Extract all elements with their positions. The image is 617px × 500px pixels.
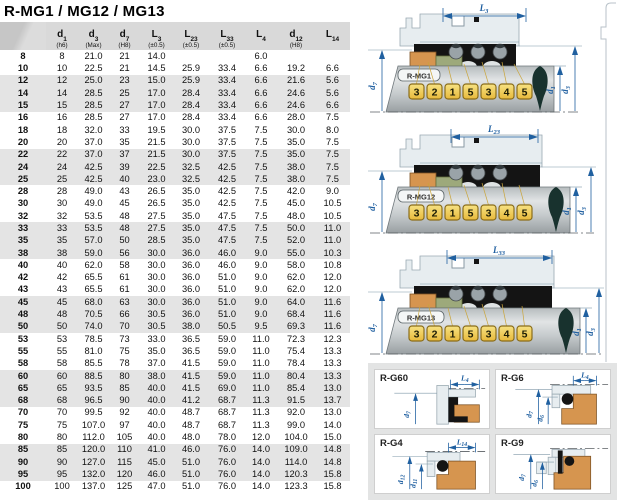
table-cell: 7.5	[245, 185, 277, 197]
table-cell: 68.0	[78, 296, 109, 308]
table-cell: 23.0	[140, 173, 173, 185]
table-cell: 70	[0, 407, 46, 419]
table-cell: 22	[46, 149, 78, 161]
table-row: 100 100 137.0 125 47.0 51.0 76.0 14.0 12…	[0, 481, 350, 493]
table-cell: 70.5	[78, 308, 109, 320]
table-cell: 25.0	[78, 75, 109, 87]
seat-ring	[410, 294, 436, 308]
set-screw	[474, 259, 479, 264]
table-cell: 127.0	[78, 456, 109, 468]
table-cell: 53	[46, 333, 78, 345]
table-cell: 35.0	[277, 136, 315, 148]
table-cell: 42.5	[209, 198, 245, 210]
table-cell: 11.0	[245, 370, 277, 382]
table-cell: 18	[46, 124, 78, 136]
table-cell: 40.0	[140, 431, 173, 443]
table-cell: 36.0	[173, 259, 209, 271]
table-cell: 80.4	[277, 370, 315, 382]
table-cell: 9.0	[245, 296, 277, 308]
svg-text:3: 3	[486, 208, 492, 220]
table-cell: 45.0	[140, 456, 173, 468]
svg-text:R-MG1: R-MG1	[407, 72, 431, 81]
table-cell: 10.8	[315, 259, 350, 271]
table-cell: 51.0	[173, 456, 209, 468]
svg-text:2: 2	[432, 208, 438, 220]
table-cell: 120.3	[277, 468, 315, 480]
table-cell: 30.0	[140, 247, 173, 259]
table-cell: 12	[46, 75, 78, 87]
table-cell: 51.0	[209, 272, 245, 284]
table-cell: 28.5	[140, 235, 173, 247]
table-cell: 37.5	[209, 136, 245, 148]
column-header-L23: L23(±0.5)	[173, 22, 209, 50]
table-cell: 14.8	[315, 444, 350, 456]
table-cell: 58.0	[277, 259, 315, 271]
table-cell: 32	[46, 210, 78, 222]
table-cell: 9.0	[245, 247, 277, 259]
table-cell: 95	[0, 468, 46, 480]
table-cell: 16	[0, 112, 46, 124]
table-cell: 24.6	[277, 87, 315, 99]
table-row: 18 18 32.0 33 19.5 30.0 37.5 7.5 30.0 8.…	[0, 124, 350, 136]
table-cell: 40.0	[140, 382, 173, 394]
table-cell: 100	[46, 481, 78, 493]
table-cell: 14.0	[245, 468, 277, 480]
table-cell: 13.3	[315, 370, 350, 382]
table-cell: 46.0	[140, 468, 173, 480]
table-cell	[277, 50, 315, 62]
table-cell: 23	[109, 75, 140, 87]
table-cell: 11.6	[315, 296, 350, 308]
table-cell: 9.0	[245, 284, 277, 296]
table-row: 16 16 28.5 27 17.0 28.4 33.4 6.6 28.0 7.…	[0, 112, 350, 124]
model-tag: R-MG12	[398, 190, 444, 202]
svg-text:4: 4	[504, 87, 510, 99]
table-cell: 70	[46, 407, 78, 419]
table-cell: 33.4	[209, 87, 245, 99]
svg-text:d3: d3	[560, 85, 572, 94]
seal-diagram-mg1: R-MG1 3 2 1 5 3 4 5 d7 d1	[362, 0, 614, 121]
table-cell: 66	[109, 308, 140, 320]
table-cell: 37.5	[209, 124, 245, 136]
table-cell: 78.4	[277, 358, 315, 370]
table-row: 90 90 127.0 115 45.0 51.0 76.0 14.0 114.…	[0, 456, 350, 468]
svg-text:5: 5	[522, 208, 528, 220]
svg-text:1: 1	[450, 329, 456, 341]
dimension-table-panel: R-MG1 / MG12 / MG13 d1(h6) d3(Max) d7(H8…	[0, 0, 362, 493]
table-cell: 65.5	[78, 272, 109, 284]
table-cell: 6.6	[245, 62, 277, 74]
table-cell: 32	[0, 210, 46, 222]
table-cell: 114.0	[277, 456, 315, 468]
table-cell: 28.0	[277, 112, 315, 124]
table-cell: 58	[46, 358, 78, 370]
table-cell: 42.5	[209, 161, 245, 173]
table-cell: 68.7	[209, 395, 245, 407]
table-cell: 28.5	[78, 112, 109, 124]
table-cell: 45	[109, 198, 140, 210]
table-cell: 25.9	[173, 62, 209, 74]
table-cell: 38	[0, 247, 46, 259]
seat-ring	[410, 173, 436, 187]
table-row: 15 15 28.5 27 17.0 28.4 33.4 6.6 24.6 6.…	[0, 99, 350, 111]
table-cell: 7.5	[315, 149, 350, 161]
table-cell: 27.5	[140, 210, 173, 222]
table-cell: 19.2	[277, 62, 315, 74]
table-cell: 10	[0, 62, 46, 74]
table-row: 10 10 22.5 21 14.5 25.9 33.4 6.6 19.2 6.…	[0, 62, 350, 74]
table-cell: 48.7	[173, 407, 209, 419]
table-cell: 11.0	[315, 235, 350, 247]
table-cell: 27.5	[140, 222, 173, 234]
svg-text:d6: d6	[535, 415, 545, 422]
table-cell: 11.0	[245, 382, 277, 394]
table-cell: 9.0	[315, 185, 350, 197]
table-cell: 50.0	[277, 222, 315, 234]
table-row: 35 35 57.0 50 28.5 35.0 47.5 7.5 52.0 11…	[0, 235, 350, 247]
seat-variant-cards: R-G60 L4 d7 R-G6	[368, 363, 617, 500]
table-cell	[209, 50, 245, 62]
table-cell: 41.5	[173, 382, 209, 394]
table-cell: 11.3	[245, 419, 277, 431]
table-cell: 32.0	[78, 124, 109, 136]
table-cell: 64.0	[277, 296, 315, 308]
table-cell: 25	[46, 173, 78, 185]
table-cell: 12.3	[315, 333, 350, 345]
set-screw	[474, 138, 479, 143]
table-cell: 59.0	[209, 358, 245, 370]
table-cell: 57.0	[78, 235, 109, 247]
table-cell: 37	[109, 149, 140, 161]
table-cell: 14.5	[140, 62, 173, 74]
table-row: 42 42 65.5 61 30.0 36.0 51.0 9.0 62.0 12…	[0, 272, 350, 284]
table-cell: 50	[0, 321, 46, 333]
table-cell: 33.4	[209, 62, 245, 74]
table-cell: 75	[0, 419, 46, 431]
svg-text:4: 4	[504, 208, 510, 220]
table-cell: 41.0	[140, 444, 173, 456]
column-header-d12: d12(H8)	[277, 22, 315, 50]
table-cell: 10.5	[315, 210, 350, 222]
bellows-black	[558, 450, 563, 473]
table-cell: 68	[46, 395, 78, 407]
table-cell: 104.0	[277, 431, 315, 443]
table-cell: 50	[46, 321, 78, 333]
oring	[565, 456, 575, 466]
oring	[437, 460, 449, 472]
table-cell: 42.5	[78, 161, 109, 173]
table-cell: 47.5	[209, 210, 245, 222]
model-tag: R-MG13	[398, 311, 444, 323]
table-cell: 42	[46, 272, 78, 284]
table-row: 8 8 21.0 21 14.0 6.0	[0, 50, 350, 62]
svg-text:2: 2	[432, 329, 438, 341]
table-cell: 15.0	[315, 431, 350, 443]
svg-text:2: 2	[432, 87, 438, 99]
svg-text:5: 5	[522, 87, 528, 99]
table-cell: 12	[0, 75, 46, 87]
table-cell: 42	[0, 272, 46, 284]
table-row: 80 80 112.0 105 40.0 48.0 78.0 12.0 104.…	[0, 431, 350, 443]
table-cell: 85	[109, 382, 140, 394]
table-cell: 28	[46, 185, 78, 197]
svg-text:L33: L33	[492, 245, 506, 257]
table-cell: 6.6	[245, 112, 277, 124]
table-cell: 21.5	[140, 136, 173, 148]
table-cell: 40	[109, 173, 140, 185]
table-cell: 35	[109, 136, 140, 148]
column-header-L14: L14	[315, 22, 350, 50]
table-cell: 14.8	[315, 456, 350, 468]
table-cell: 35.0	[173, 198, 209, 210]
svg-text:d7: d7	[367, 323, 379, 332]
table-cell: 33.4	[209, 112, 245, 124]
column-header-d1: d1(h6)	[46, 22, 78, 50]
table-cell: 46.0	[173, 444, 209, 456]
table-cell: 28	[0, 185, 46, 197]
table-cell: 75	[109, 345, 140, 357]
svg-text:1: 1	[450, 87, 456, 99]
table-cell: 40	[46, 259, 78, 271]
table-cell: 35.0	[140, 345, 173, 357]
table-cell: 99.0	[277, 419, 315, 431]
table-cell: 37.5	[209, 149, 245, 161]
table-cell: 42.0	[277, 185, 315, 197]
table-cell: 63	[109, 296, 140, 308]
table-cell: 17.0	[140, 112, 173, 124]
table-cell: 35.0	[173, 185, 209, 197]
seal-housing	[400, 135, 542, 167]
table-cell: 41.5	[173, 358, 209, 370]
table-cell: 24.6	[277, 99, 315, 111]
gland	[427, 452, 460, 461]
table-cell: 12.0	[245, 431, 277, 443]
table-cell: 30.0	[140, 296, 173, 308]
table-cell: 49.0	[78, 198, 109, 210]
svg-text:d3: d3	[576, 206, 588, 215]
table-cell: 10.5	[315, 198, 350, 210]
column-header-L4: L4	[245, 22, 277, 50]
table-cell: 13.0	[315, 407, 350, 419]
table-cell: 53	[0, 333, 46, 345]
table-cell: 60	[46, 370, 78, 382]
table-cell: 30.0	[140, 259, 173, 271]
table-cell: 35.0	[277, 149, 315, 161]
table-cell: 17.0	[140, 87, 173, 99]
table-cell: 45	[0, 296, 46, 308]
table-cell: 32.5	[173, 173, 209, 185]
card-r-g6: R-G6 L4 d7 d6	[495, 369, 611, 429]
table-cell: 32.5	[173, 161, 209, 173]
table-cell: 35	[0, 235, 46, 247]
table-cell: 33.4	[209, 99, 245, 111]
svg-text:d7: d7	[367, 202, 379, 211]
table-cell: 15	[46, 99, 78, 111]
table-cell: 76.0	[209, 456, 245, 468]
table-cell: 39	[109, 161, 140, 173]
table-cell: 93.5	[78, 382, 109, 394]
table-cell: 59.0	[209, 345, 245, 357]
table-cell: 120	[109, 468, 140, 480]
table-cell: 41.2	[173, 395, 209, 407]
table-cell: 42.5	[209, 185, 245, 197]
table-cell: 15.8	[315, 481, 350, 493]
table-cell: 47.5	[209, 235, 245, 247]
svg-text:5: 5	[468, 208, 474, 220]
svg-text:3: 3	[486, 329, 492, 341]
column-header-blank	[0, 22, 46, 50]
number-markers: 3 2 1 5 3 4 5	[409, 326, 532, 341]
table-cell: 48	[46, 308, 78, 320]
table-row: 38 38 59.0 56 30.0 36.0 46.0 9.0 55.0 10…	[0, 247, 350, 259]
table-cell: 33	[109, 124, 140, 136]
table-row: 14 14 28.5 25 17.0 28.4 33.4 6.6 24.6 5.…	[0, 87, 350, 99]
table-cell: 5.6	[315, 75, 350, 87]
table-cell: 51.0	[173, 481, 209, 493]
table-cell: 11.0	[315, 222, 350, 234]
table-cell: 9.0	[245, 259, 277, 271]
table-cell: 48	[0, 308, 46, 320]
table-cell: 11.3	[245, 407, 277, 419]
svg-text:d7: d7	[367, 81, 379, 90]
table-row: 28 28 49.0 43 26.5 35.0 42.5 7.5 42.0 9.…	[0, 185, 350, 197]
table-cell: 37.0	[78, 149, 109, 161]
table-row: 85 85 120.0 110 41.0 46.0 76.0 14.0 109.…	[0, 444, 350, 456]
table-cell: 30.0	[140, 272, 173, 284]
table-cell: 43	[109, 185, 140, 197]
table-cell: 38.0	[277, 173, 315, 185]
table-cell: 38.0	[173, 321, 209, 333]
table-cell: 6.0	[245, 50, 277, 62]
springs	[449, 44, 507, 59]
table-cell: 61	[109, 272, 140, 284]
table-cell: 24	[46, 161, 78, 173]
table-row: 95 95 132.0 120 46.0 51.0 76.0 14.0 120.…	[0, 468, 350, 480]
table-cell: 7.5	[245, 136, 277, 148]
table-cell: 13.3	[315, 345, 350, 357]
table-cell: 88.5	[78, 370, 109, 382]
table-cell: 25.9	[173, 75, 209, 87]
table-cell: 8	[0, 50, 46, 62]
table-cell: 24	[0, 161, 46, 173]
table-row: 12 12 25.0 23 15.0 25.9 33.4 6.6 21.6 5.…	[0, 75, 350, 87]
table-cell: 15	[0, 99, 46, 111]
table-cell: 6.6	[245, 75, 277, 87]
table-cell: 6.6	[315, 62, 350, 74]
table-row: 24 24 42.5 39 22.5 32.5 42.5 7.5 38.0 7.…	[0, 161, 350, 173]
table-row: 50 50 74.0 70 30.5 38.0 50.5 9.5 69.3 11…	[0, 321, 350, 333]
table-cell: 105	[109, 431, 140, 443]
table-cell: 15.0	[140, 75, 173, 87]
table-cell: 78	[109, 358, 140, 370]
table-cell: 20	[46, 136, 78, 148]
table-cell: 78.0	[209, 431, 245, 443]
table-cell: 97	[109, 419, 140, 431]
table-cell: 90	[109, 395, 140, 407]
table-cell: 20	[0, 136, 46, 148]
diagram-panel: R-MG1 3 2 1 5 3 4 5 d7 d1	[362, 0, 617, 500]
table-cell: 6.6	[315, 99, 350, 111]
drive-pin	[452, 16, 464, 26]
table-row: 53 53 78.5 73 33.0 36.5 59.0 11.0 72.3 1…	[0, 333, 350, 345]
column-header-L3: L3(±0.5)	[140, 22, 173, 50]
table-cell: 48	[109, 210, 140, 222]
table-cell: 9.0	[245, 272, 277, 284]
table-cell: 110	[109, 444, 140, 456]
table-row: 25 25 42.5 40 23.0 32.5 42.5 7.5 38.0 7.…	[0, 173, 350, 185]
svg-text:4: 4	[504, 329, 510, 341]
table-cell: 75	[46, 419, 78, 431]
table-cell: 22.5	[140, 161, 173, 173]
table-cell: 48.7	[173, 419, 209, 431]
table-cell: 7.5	[245, 173, 277, 185]
table-cell: 46.0	[209, 259, 245, 271]
table-cell: 46.0	[209, 247, 245, 259]
table-cell: 90	[46, 456, 78, 468]
table-row: 68 68 96.5 90 40.0 41.2 68.7 11.3 91.5 1…	[0, 395, 350, 407]
table-row: 55 55 81.0 75 35.0 36.5 59.0 11.0 75.4 1…	[0, 345, 350, 357]
drive-pin	[452, 137, 464, 147]
table-cell: 14.0	[245, 481, 277, 493]
table-cell: 21.0	[78, 50, 109, 62]
table-cell: 65.5	[78, 284, 109, 296]
table-cell: 18	[0, 124, 46, 136]
set-screw	[474, 17, 479, 22]
table-row: 65 65 93.5 85 40.0 41.5 69.0 11.0 85.4 1…	[0, 382, 350, 394]
table-cell: 76.0	[209, 468, 245, 480]
table-cell: 53.5	[78, 222, 109, 234]
table-cell: 21	[109, 62, 140, 74]
table-cell: 43	[46, 284, 78, 296]
table-cell: 26.5	[140, 198, 173, 210]
table-cell: 6.6	[245, 87, 277, 99]
table-cell	[173, 50, 209, 62]
spec-table: d1(h6) d3(Max) d7(H8) L3(±0.5) L23(±0.5)…	[0, 22, 350, 493]
table-cell: 61	[109, 284, 140, 296]
table-cell: 7.5	[245, 222, 277, 234]
table-row: 33 33 53.5 48 27.5 35.0 47.5 7.5 50.0 11…	[0, 222, 350, 234]
table-cell: 123.3	[277, 481, 315, 493]
table-cell: 74.0	[78, 321, 109, 333]
table-row: 75 75 107.0 97 40.0 48.7 68.7 11.3 99.0 …	[0, 419, 350, 431]
table-cell: 62.0	[277, 272, 315, 284]
table-cell: 7.5	[315, 161, 350, 173]
springs	[449, 165, 507, 180]
table-cell: 75.4	[277, 345, 315, 357]
table-cell: 42.5	[78, 173, 109, 185]
svg-text:5: 5	[468, 329, 474, 341]
table-cell: 11.0	[245, 345, 277, 357]
table-cell: 30.5	[140, 308, 173, 320]
table-row: 70 70 99.5 92 40.0 48.7 68.7 11.3 92.0 1…	[0, 407, 350, 419]
table-cell: 22.5	[78, 62, 109, 74]
table-cell: 28.5	[78, 99, 109, 111]
table-cell: 70	[109, 321, 140, 333]
table-row: 40 40 62.0 58 30.0 36.0 46.0 9.0 58.0 10…	[0, 259, 350, 271]
table-cell: 40.0	[140, 395, 173, 407]
table-cell: 96.5	[78, 395, 109, 407]
column-header-d3: d3(Max)	[78, 22, 109, 50]
page-title: R-MG1 / MG12 / MG13	[4, 3, 362, 20]
table-cell: 19.5	[140, 124, 173, 136]
table-cell: 17.0	[140, 99, 173, 111]
table-cell: 47.0	[140, 481, 173, 493]
table-cell: 95	[46, 468, 78, 480]
table-cell: 9.5	[245, 321, 277, 333]
gland	[437, 385, 449, 424]
table-cell: 90	[0, 456, 46, 468]
table-cell: 112.0	[78, 431, 109, 443]
